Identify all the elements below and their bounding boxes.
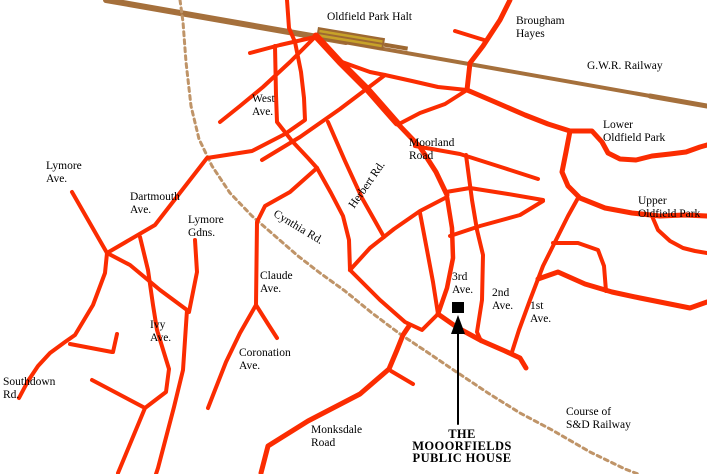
map-label-oldfield-park-halt: Oldfield Park Halt <box>327 11 412 24</box>
road-cynthia-lower-a <box>350 197 447 270</box>
map-label-line: Ave. <box>46 173 82 186</box>
map-label-line: G.W.R. Railway <box>587 60 663 73</box>
map-label-dartmouth-ave: DartmouthAve. <box>130 191 180 217</box>
map-label-second-ave: 2ndAve. <box>492 287 513 313</box>
road-southdown-hook-stub <box>113 334 117 352</box>
map-label-moorland-road: MoorlandRoad <box>409 137 454 163</box>
sd-railway-course <box>180 0 638 474</box>
map-label-line: Lower <box>603 119 665 132</box>
map-label-line: 2nd <box>492 287 513 300</box>
map-label-line: Southdown <box>3 376 55 389</box>
map-label-line: Ave. <box>252 106 275 119</box>
map-label-line: Ave. <box>150 332 171 345</box>
road-cynthia-upper <box>317 168 350 270</box>
map-label-ivy-ave: IvyAve. <box>150 319 171 345</box>
map-label-line: Ave. <box>492 300 513 313</box>
road-lymore-gdns <box>189 240 197 312</box>
map-label-line: Oldfield Park <box>638 208 700 221</box>
map-label-third-ave: 3rdAve. <box>452 271 473 297</box>
map-label-line: Road <box>409 150 454 163</box>
map-label-line: Lymore <box>188 214 224 227</box>
road-cynthia-lower-b <box>350 270 438 330</box>
map-label-upper-oldfield-park: UpperOldfield Park <box>638 195 700 221</box>
map-label-lymore-ave: LymoreAve. <box>46 160 82 186</box>
map-label-line: Rd. <box>3 389 55 402</box>
map-label-line: Hayes <box>516 28 565 41</box>
road-third-ave <box>438 197 453 314</box>
map-label-line: Lymore <box>46 160 82 173</box>
road-cross-diagonal <box>262 75 385 160</box>
road-junction-se-link <box>467 90 570 131</box>
road-monksdale-stub <box>391 371 413 384</box>
map-label-line: Moorland <box>409 137 454 150</box>
road-lymore-ave <box>72 192 107 253</box>
map-label-line: Coronation <box>239 347 291 360</box>
map-label-line: PUBLIC HOUSE <box>402 452 522 464</box>
map-label-west-ave: WestAve. <box>252 93 275 119</box>
road-upper-branch <box>652 216 707 253</box>
map-label-lower-oldfield-park: LowerOldfield Park <box>603 119 665 145</box>
road-claude-stub <box>256 305 277 338</box>
road-third-ave-west-branch <box>420 213 438 314</box>
map-label-line: Ivy <box>150 319 171 332</box>
map-label-line: Monksdale <box>311 424 362 437</box>
street-map: Oldfield Park HaltBroughamHayesG.W.R. Ra… <box>0 0 707 474</box>
road-ivy-east-road <box>107 253 187 474</box>
map-label-line: 1st <box>530 300 551 313</box>
map-label-line: Road <box>311 437 362 450</box>
pub-location-marker <box>452 302 464 313</box>
map-label-line: Course of <box>566 406 631 419</box>
map-label-line: Oldfield Park <box>603 132 665 145</box>
road-long-diagonal <box>538 272 707 308</box>
map-label-line: Brougham <box>516 15 565 28</box>
map-label-line: Claude <box>260 270 293 283</box>
gwr-thick-east <box>650 96 707 106</box>
map-label-line: 3rd <box>452 271 473 284</box>
road-southdown-hook <box>70 344 112 352</box>
map-label-monksdale-road: MonksdaleRoad <box>311 424 362 450</box>
map-label-lymore-gdns: LymoreGdns. <box>188 214 224 240</box>
map-label-course-of-sd-railway: Course ofS&D Railway <box>566 406 631 432</box>
map-label-line: Ave. <box>130 204 180 217</box>
map-label-line: Oldfield Park Halt <box>327 11 412 24</box>
map-label-southdown-rd: SouthdownRd. <box>3 376 55 402</box>
map-label-gwr-railway: G.W.R. Railway <box>587 60 663 73</box>
map-label-line: Ave. <box>452 284 473 297</box>
road-ivy-spur <box>92 380 145 408</box>
map-label-line: Ave. <box>239 360 291 373</box>
map-label-line: S&D Railway <box>566 419 631 432</box>
road-moorland-lower <box>446 188 543 200</box>
map-label-line: Gdns. <box>188 227 224 240</box>
map-label-coronation-ave: CoronationAve. <box>239 347 291 373</box>
road-second-ave <box>466 155 483 341</box>
road-junction-sw-link <box>399 90 467 124</box>
road-ivy-west-road <box>118 237 169 473</box>
map-label-line: Ave. <box>530 313 551 326</box>
gwr-thick-west <box>106 0 346 42</box>
map-label-first-ave: 1stAve. <box>530 300 551 326</box>
map-label-brougham-hayes: BroughamHayes <box>516 15 565 41</box>
road-brougham-hayes-road <box>467 0 510 90</box>
map-label-claude-ave: ClaudeAve. <box>260 270 293 296</box>
map-label-line: Ave. <box>260 283 293 296</box>
map-label-line: West <box>252 93 275 106</box>
road-brougham-stub <box>455 31 484 40</box>
map-label-line: Dartmouth <box>130 191 180 204</box>
map-label-line: Upper <box>638 195 700 208</box>
map-label-pub-name: THEMOOORFIELDSPUBLIC HOUSE <box>402 428 522 464</box>
road-avenue-diagonal <box>450 201 543 236</box>
